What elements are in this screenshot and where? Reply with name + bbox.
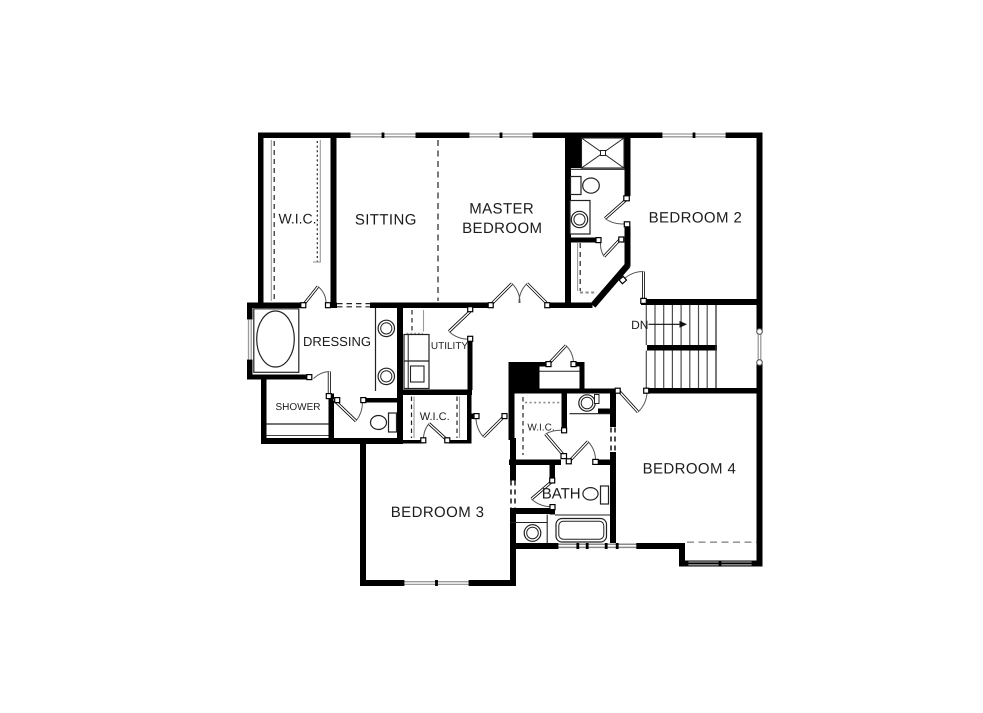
svg-text:BEDROOM: BEDROOM — [462, 220, 542, 237]
svg-text:MASTER: MASTER — [469, 201, 534, 218]
svg-text:SHOWER: SHOWER — [276, 402, 321, 413]
svg-text:W.I.C.: W.I.C. — [420, 411, 450, 423]
svg-text:SITTING: SITTING — [355, 212, 417, 229]
svg-text:BEDROOM 4: BEDROOM 4 — [643, 460, 737, 477]
svg-text:DRESSING: DRESSING — [303, 334, 371, 349]
svg-text:BATH: BATH — [542, 485, 581, 502]
svg-text:W.I.C.: W.I.C. — [278, 211, 316, 227]
svg-text:BEDROOM 3: BEDROOM 3 — [391, 504, 485, 521]
svg-text:UTILITY: UTILITY — [431, 341, 469, 352]
svg-text:BEDROOM 2: BEDROOM 2 — [649, 210, 743, 227]
svg-text:DN: DN — [631, 318, 648, 332]
svg-text:W.I.C.: W.I.C. — [527, 422, 554, 433]
